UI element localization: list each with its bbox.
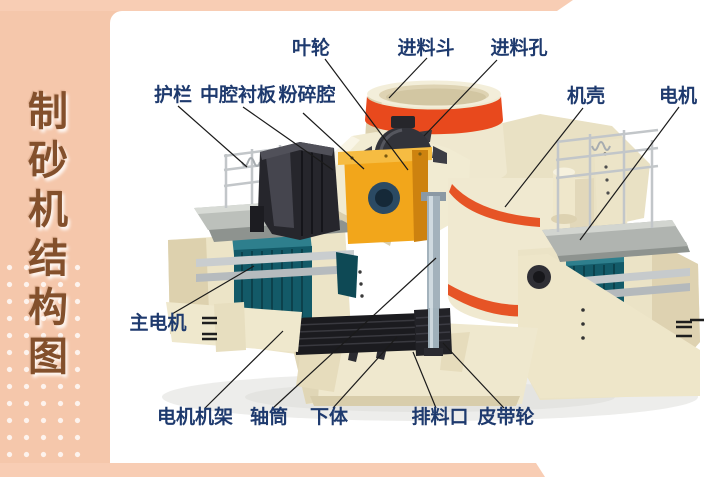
label-discharge-port: 排料口 bbox=[411, 408, 468, 428]
label-cavity-liner: 中腔衬板 bbox=[200, 86, 276, 106]
machine-illustration bbox=[0, 0, 720, 477]
label-casing: 机壳 bbox=[567, 87, 605, 107]
label-motor: 电机 bbox=[659, 87, 697, 107]
label-motor-frame: 电机机架 bbox=[157, 408, 233, 428]
page: 制 砂 机 结 构 图 bbox=[0, 0, 720, 477]
label-shaft-sleeve: 轴筒 bbox=[250, 408, 288, 428]
label-guardrail: 护栏 bbox=[154, 86, 192, 106]
label-main-motor: 主电机 bbox=[129, 314, 186, 334]
leader-guardrail bbox=[178, 106, 247, 167]
label-feed-hopper: 进料斗 bbox=[397, 39, 454, 59]
label-feed-inlet: 进料孔 bbox=[490, 39, 547, 59]
belt-pulley bbox=[414, 308, 452, 356]
label-crushing-chamber: 粉碎腔 bbox=[278, 86, 335, 106]
label-belt-pulley: 皮带轮 bbox=[477, 408, 534, 428]
drive-belt bbox=[294, 313, 424, 355]
label-lower-body: 下体 bbox=[310, 408, 348, 428]
label-impeller: 叶轮 bbox=[292, 39, 330, 59]
